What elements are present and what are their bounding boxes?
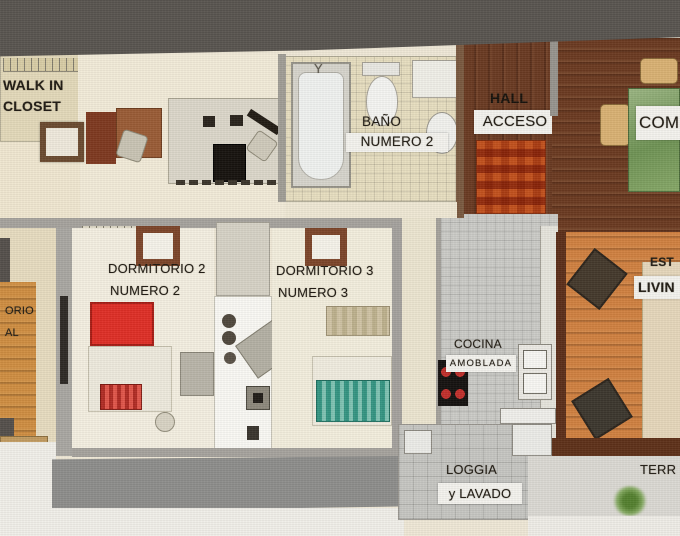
kitchen-label-strip: AMOBLADA (446, 355, 516, 372)
hall-label-line1: HALL (490, 91, 528, 106)
bath-bottom-fill (285, 202, 457, 218)
closet-block (216, 222, 270, 296)
exterior-gray-band (52, 456, 402, 512)
bedroom-3-label-line2: NUMERO 3 (278, 286, 348, 300)
laundry-appliance (512, 424, 552, 456)
side-table-round (155, 412, 175, 432)
master-dark-bar (0, 238, 10, 282)
bathtub-basin (298, 72, 344, 180)
bathroom-2-label-line2: NUMERO 2 (361, 135, 434, 149)
loggia-label-line2: y LAVADO (449, 487, 512, 501)
paper-bottom-right (528, 516, 680, 536)
floorplan-photo: Y BAÑO NUMERO 2 HALL ACCESO COME ORIO AL… (0, 0, 680, 536)
kitchen-sink-basin (523, 373, 547, 394)
fixture-dot (224, 352, 236, 364)
crossed-out-label (176, 180, 288, 185)
toilet-tank (362, 62, 400, 76)
monitor-screen (253, 393, 263, 403)
framed-furniture (40, 122, 84, 162)
corridor-floor (402, 218, 436, 428)
living-label-strip: LIVIN (634, 276, 680, 299)
fixture-dot (222, 314, 236, 328)
bathtub-faucet-icon: Y (314, 62, 323, 76)
bedroom-2-label-line2: NUMERO 2 (110, 284, 180, 298)
bedroom-3-frame-furniture (305, 228, 347, 266)
laundry-counter (500, 408, 556, 424)
bed-teal-striped (316, 380, 390, 422)
loggia-label-strip: y LAVADO (438, 483, 522, 504)
walk-in-closet-label-line2: CLOSET (3, 99, 61, 114)
dining-chair (600, 104, 630, 146)
bench-red-striped (100, 384, 142, 410)
dining-chair (640, 58, 678, 84)
door-leaf (60, 296, 68, 384)
vanity-cabinet (412, 60, 460, 98)
dining-table (628, 88, 680, 192)
walk-in-closet-label-line1: WALK IN (3, 78, 64, 93)
bedrooms-bottom-wall (72, 448, 402, 457)
terrace-dark-strip (552, 438, 680, 458)
hall-rug (476, 140, 546, 214)
hall-label-strip: ACCESO (474, 110, 556, 134)
washer-icon (404, 430, 432, 454)
terrace-label: TERR (640, 463, 676, 477)
kitchen-sink-basin (523, 350, 547, 369)
speaker-icon (203, 116, 215, 127)
master-label-frag1: ORIO (5, 306, 34, 318)
bath-hall-wall (456, 42, 464, 218)
kitchen-label-line1: COCINA (454, 338, 502, 351)
wardrobe-dark (86, 112, 116, 164)
hall-label-line2: ACCESO (483, 114, 548, 130)
plant-icon (612, 486, 648, 516)
dining-label-strip: COME (636, 106, 680, 140)
small-fixture (247, 426, 259, 440)
living-label-frag2: LIVIN (634, 280, 675, 295)
bed-red (90, 302, 154, 346)
main-wall (0, 218, 402, 228)
bathroom-2-label-strip: NUMERO 2 (346, 133, 448, 152)
speaker-icon (230, 115, 243, 126)
master-label-frag2: AL (5, 328, 19, 340)
master-bath-wall (278, 54, 286, 202)
hall-dining-wall (550, 38, 558, 116)
dining-label: COME (636, 114, 680, 132)
bathroom-2-label-line1: BAÑO (362, 115, 401, 129)
paper-bottom-strip (0, 508, 404, 536)
hanger-rail-icon (3, 58, 79, 72)
kitchen-label-line2: AMOBLADA (450, 359, 512, 369)
fixture-dot (222, 331, 236, 345)
bedroom-2-label-line1: DORMITORIO 2 (108, 262, 206, 276)
corridor-wall (392, 222, 402, 450)
tv-icon (213, 144, 246, 182)
bedroom-3-label-line1: DORMITORIO 3 (276, 264, 374, 278)
bedroom-3-rug (326, 306, 390, 336)
bedroom-2-desk (180, 352, 214, 396)
living-label-frag1: EST (650, 256, 674, 269)
bedroom-2-frame-furniture (136, 226, 180, 266)
loggia-label-line1: LOGGIA (446, 463, 497, 477)
